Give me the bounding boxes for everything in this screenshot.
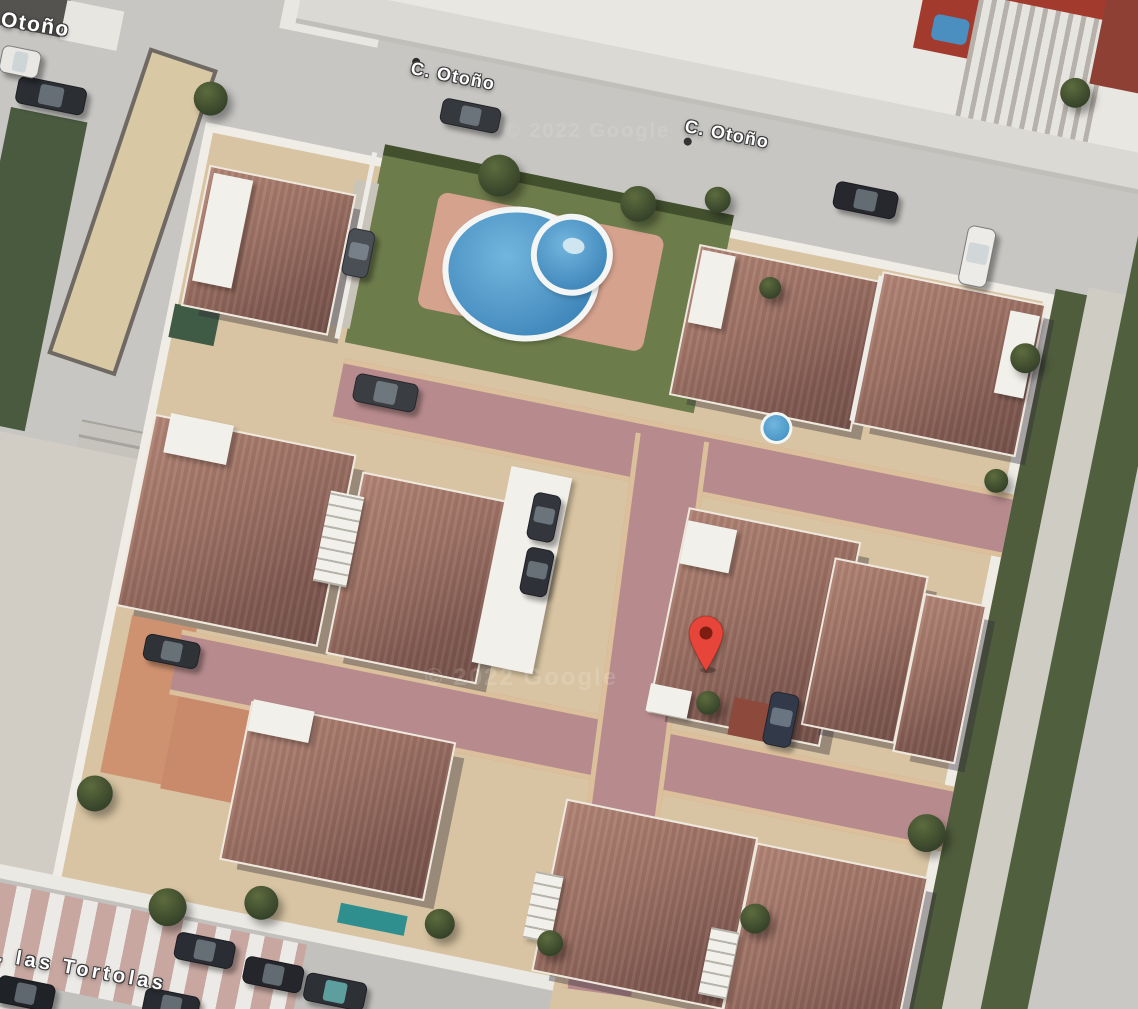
map-canvas[interactable]: OtoñoC. OtoñoC. Otoño. las Tortolas © 20… [0, 0, 1138, 1009]
imagery-watermark: © 2022 Google [425, 664, 618, 692]
map-pin[interactable] [686, 615, 726, 673]
satellite-imagery [0, 0, 1138, 1009]
pin-body [689, 616, 723, 671]
pin-hole [700, 627, 713, 640]
house-roof [116, 414, 357, 647]
imagery-watermark: © 2022 Google [505, 120, 670, 143]
